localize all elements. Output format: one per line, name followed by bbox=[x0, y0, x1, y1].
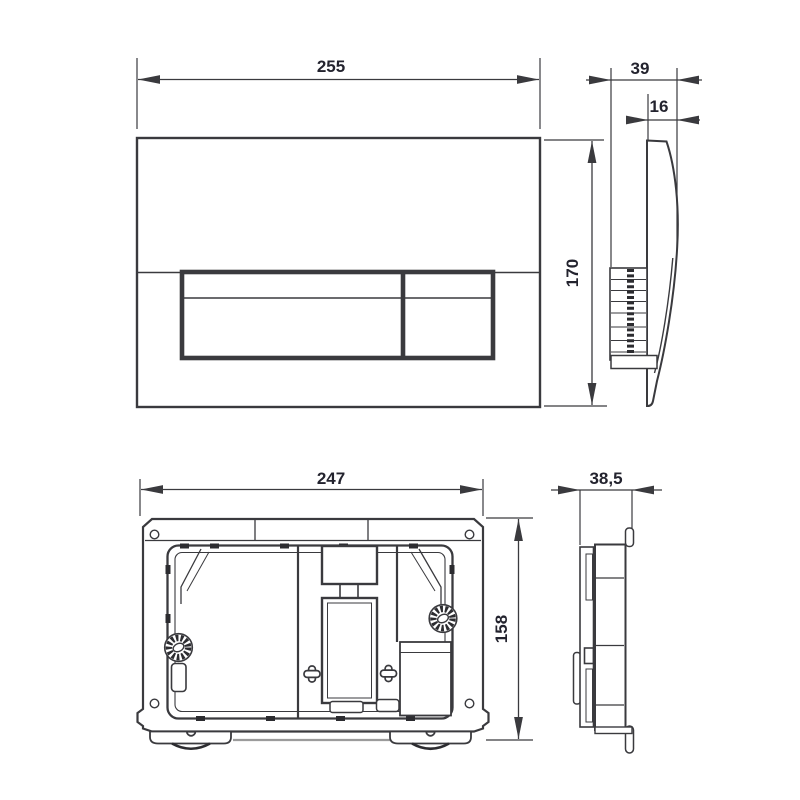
dim-label-frame-depth: 38,5 bbox=[589, 469, 622, 488]
front-strip bbox=[580, 547, 594, 727]
dim-label-side-depth: 39 bbox=[631, 59, 650, 78]
mechanism-flange bbox=[611, 356, 657, 369]
button-recess bbox=[182, 272, 493, 358]
top-tab bbox=[626, 528, 634, 547]
flush-plate-dimension-drawing: 255 170 bbox=[0, 0, 800, 800]
dim-label-front-width: 255 bbox=[317, 57, 345, 76]
back-view bbox=[138, 519, 489, 749]
mounting-foot-right bbox=[390, 732, 471, 749]
left-slot bbox=[172, 664, 187, 692]
technical-drawing-page: 255 170 bbox=[0, 0, 800, 800]
adjuster-wheel-left bbox=[165, 634, 193, 662]
mounting-foot-left bbox=[150, 732, 231, 749]
side-view-top bbox=[610, 141, 678, 407]
dim-side-depth: 39 bbox=[586, 59, 702, 267]
bottom-slot-right bbox=[377, 700, 400, 712]
dim-frame-height: 158 bbox=[486, 518, 533, 740]
dim-label-front-height: 170 bbox=[563, 259, 582, 287]
dim-label-frame-width: 247 bbox=[317, 469, 345, 488]
frame-side-body bbox=[595, 545, 626, 731]
adjuster-wheel-right bbox=[429, 605, 457, 633]
dim-frame-width: 247 bbox=[140, 469, 483, 516]
dim-label-frame-height: 158 bbox=[492, 615, 511, 643]
valve-top-box bbox=[322, 546, 377, 584]
dim-label-plate-thickness: 16 bbox=[650, 97, 669, 116]
valve-main-box bbox=[322, 598, 377, 703]
dim-front-height: 170 bbox=[544, 140, 607, 406]
dim-front-width: 255 bbox=[137, 57, 540, 129]
bottom-slot-left bbox=[330, 702, 363, 713]
bottom-flange bbox=[595, 727, 632, 734]
side-view-bottom bbox=[574, 528, 634, 753]
front-view bbox=[137, 138, 540, 407]
dim-plate-thickness: 16 bbox=[626, 94, 700, 140]
dim-frame-depth: 38,5 bbox=[551, 469, 662, 545]
